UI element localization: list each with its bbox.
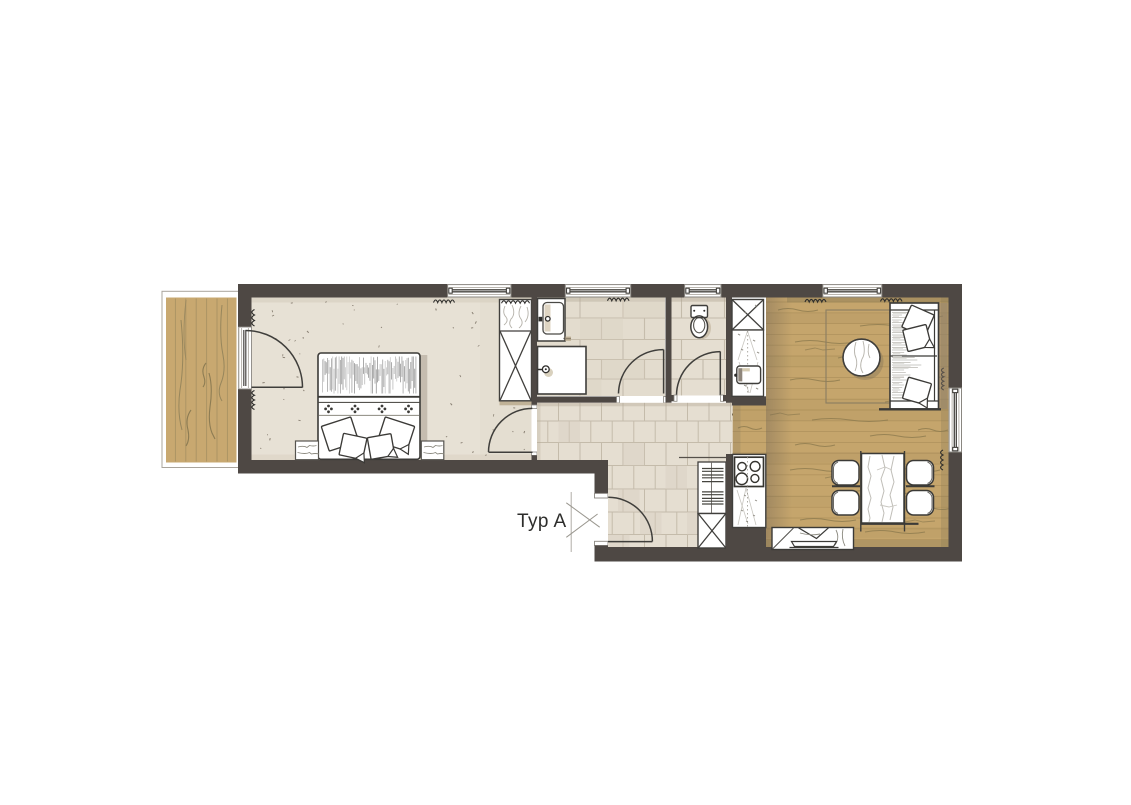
svg-text:Typ A: Typ A [517, 511, 567, 532]
